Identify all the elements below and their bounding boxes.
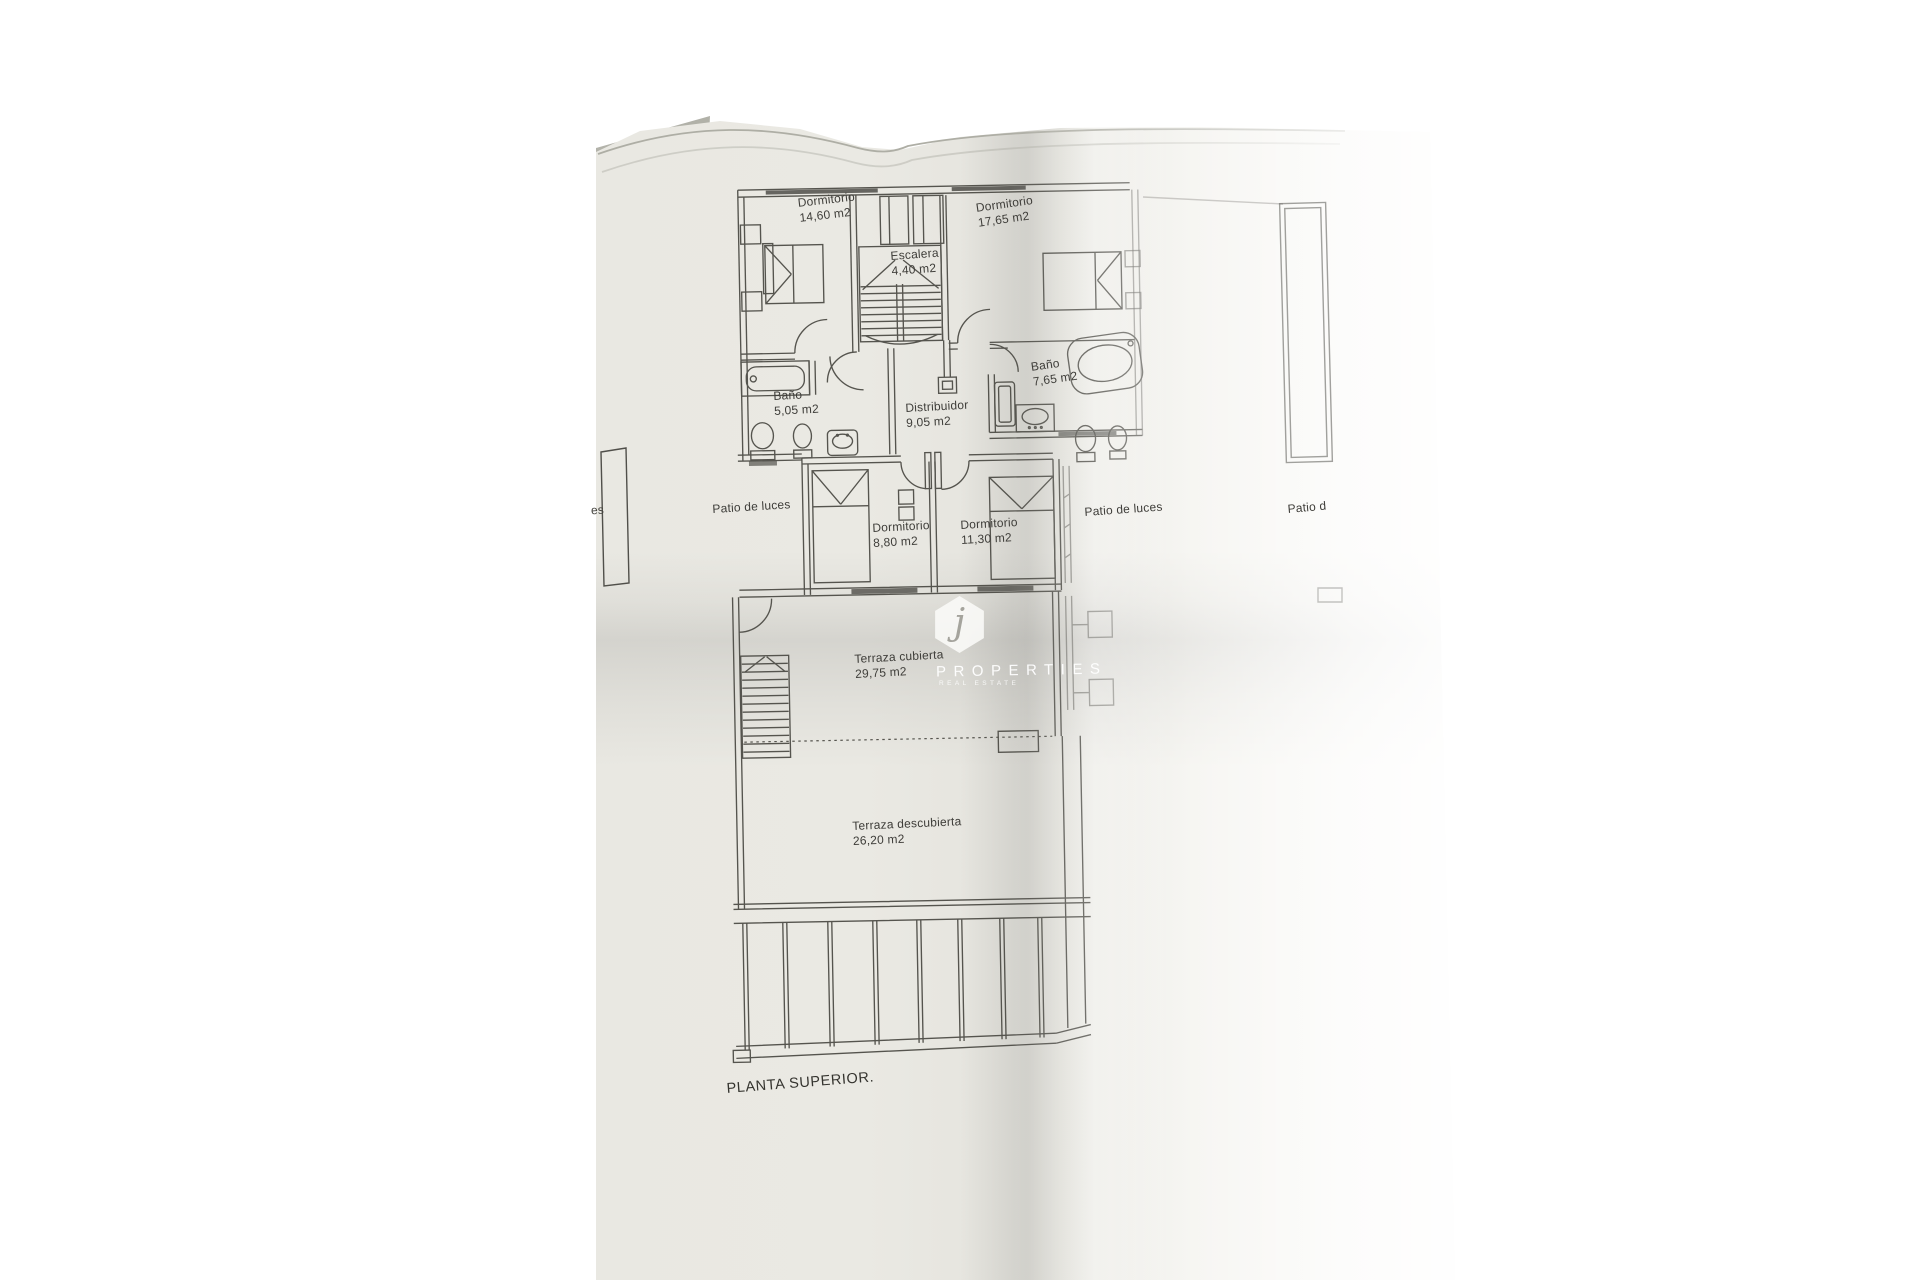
room-area: 29,75 m2 — [855, 662, 945, 682]
room-name: Patio de luces — [1084, 500, 1163, 519]
room-name: Patio d — [1287, 499, 1327, 516]
label-dorm-top-right: Dormitorio 17,65 m2 — [975, 193, 1036, 231]
label-bano-right: Baño 7,65 m2 — [1030, 354, 1079, 390]
room-labels: Dormitorio 14,60 m2 Dormitorio 17,65 m2 … — [0, 0, 1920, 1280]
floor-plan-photo: Dormitorio 14,60 m2 Dormitorio 17,65 m2 … — [0, 0, 1920, 1280]
room-area: 11,30 m2 — [961, 530, 1019, 548]
room-name: Patio de luces — [712, 497, 791, 516]
label-dorm-top-left: Dormitorio 14,60 m2 — [797, 190, 857, 226]
label-patio-right: Patio de luces — [1084, 500, 1163, 520]
plan-title: PLANTA SUPERIOR. — [726, 1069, 875, 1097]
label-dorm-mid-left: Dormitorio 8,80 m2 — [872, 518, 931, 551]
room-area: 5,05 m2 — [774, 402, 819, 419]
left-page-label-fragment: es — [591, 503, 605, 518]
room-name: Baño — [773, 387, 803, 402]
label-patio-left: Patio de luces — [712, 497, 791, 517]
label-terraza-cubierta: Terraza cubierta 29,75 m2 — [854, 647, 945, 682]
room-area: 4,40 m2 — [891, 261, 940, 279]
room-name: Distribuidor — [905, 398, 969, 415]
label-bano-left: Baño 5,05 m2 — [773, 387, 819, 419]
label-distribuidor: Distribuidor 9,05 m2 — [905, 398, 970, 431]
room-area: 9,05 m2 — [906, 413, 970, 431]
label-dorm-mid-right: Dormitorio 11,30 m2 — [960, 515, 1019, 548]
label-escalera: Escalera 4,40 m2 — [890, 246, 940, 279]
room-name: Dormitorio — [872, 518, 930, 535]
label-patio-far-right: Patio d — [1287, 499, 1327, 517]
room-area: 8,80 m2 — [873, 533, 931, 551]
label-terraza-descubierta: Terraza descubierta 26,20 m2 — [852, 814, 962, 849]
